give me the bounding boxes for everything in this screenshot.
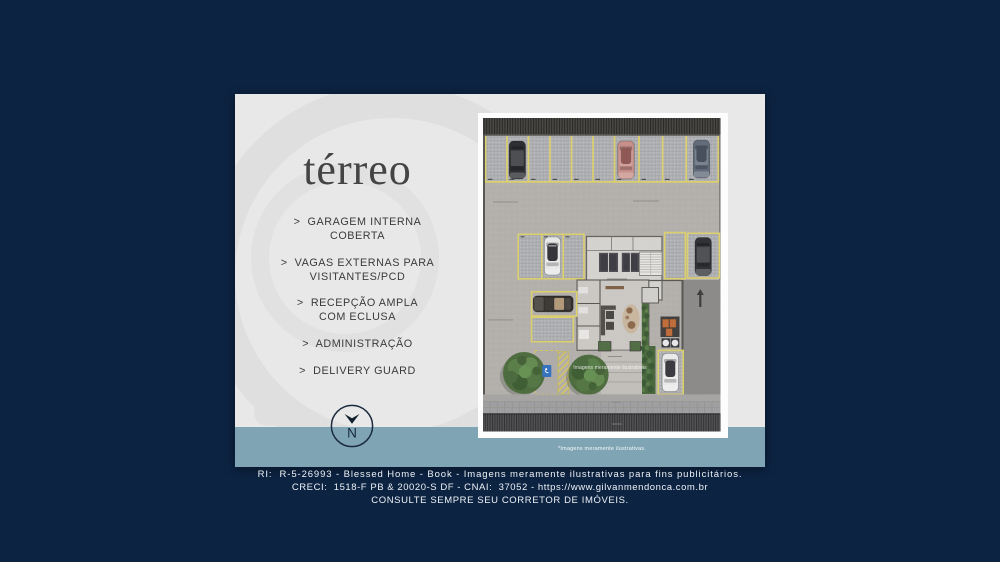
svg-text:N: N bbox=[347, 426, 357, 441]
svg-text:Imagens meramente ilustrativas: Imagens meramente ilustrativas bbox=[573, 365, 647, 371]
